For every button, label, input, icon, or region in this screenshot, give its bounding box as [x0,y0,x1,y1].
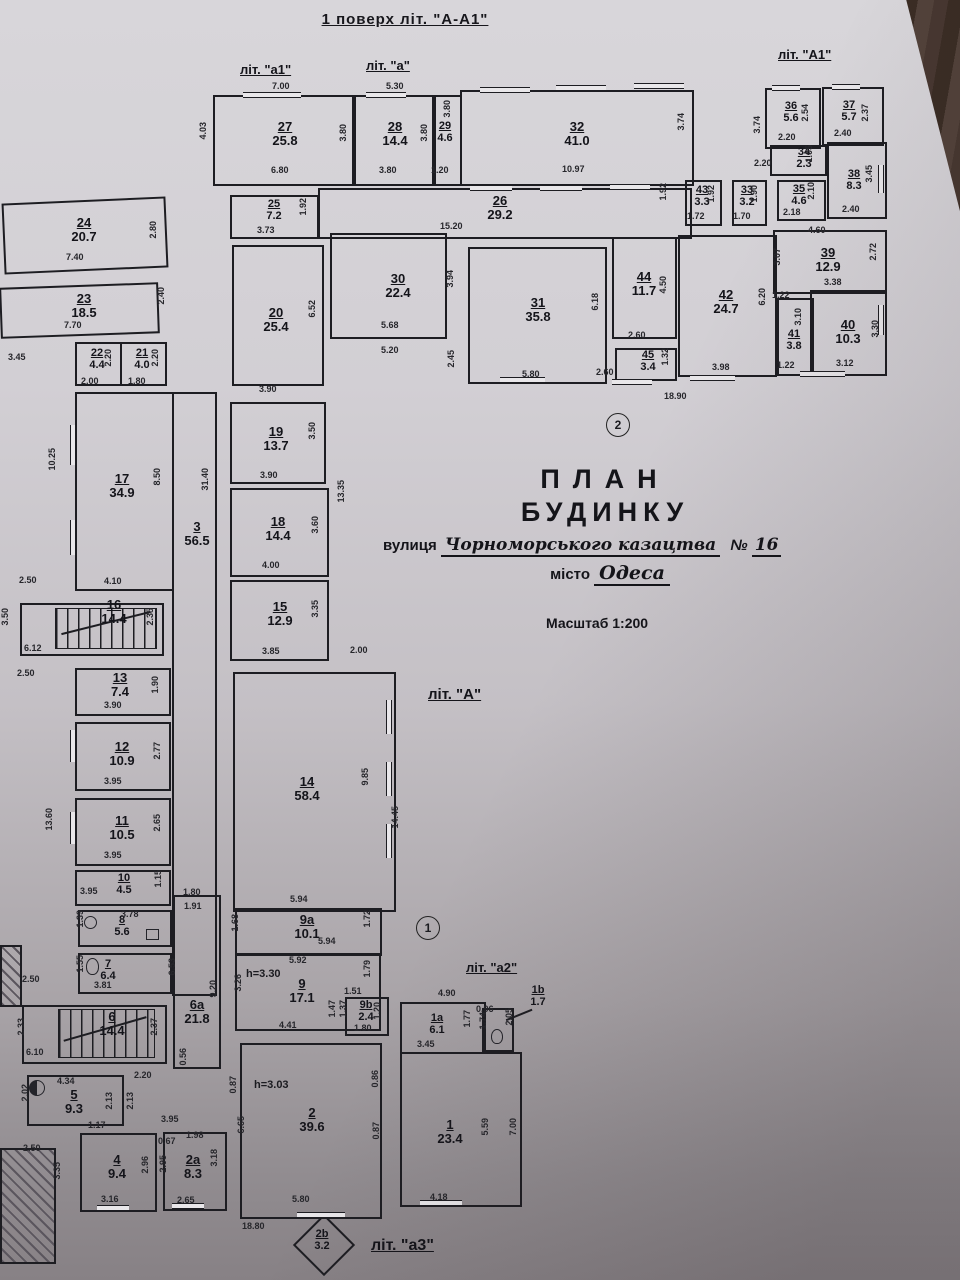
street-line: вулиця Чорноморського казацтва № 16 [383,535,843,555]
window-symbol [386,762,392,796]
street-label: вулиця [383,537,437,554]
room-label-27: 2725.8 [253,120,317,148]
dim-label: 4.10 [104,576,122,586]
dim-label: 1.91 [184,901,202,911]
dim-label: 3.50 [0,608,10,626]
room-label-1b: 1b1.7 [512,984,564,1008]
window-symbol [366,92,406,98]
dim-label: 1.37 [338,1000,348,1018]
room-label-1a: 1a6.1 [411,1012,463,1036]
dim-label: 0.86 [370,1070,380,1088]
dim-label: 4.34 [57,1076,75,1086]
dim-label: 3.78 [121,909,139,919]
dim-label: 1.55 [75,955,85,973]
dim-label: 9.85 [360,768,370,786]
dim-label: 5.80 [292,1194,310,1204]
room-label-12: 1210.9 [90,740,154,768]
room-label-24: 2420.7 [52,216,116,244]
dim-label: 2.33 [16,1018,26,1036]
window-symbol [70,730,76,762]
dim-label: 2.96 [140,1156,150,1174]
dim-label: 2.80 [148,221,158,239]
dim-label: 0.87 [371,1122,381,1140]
dim-label: 4.18 [430,1192,448,1202]
dim-label: 3.38 [824,277,842,287]
dim-label: 2.65 [152,814,162,832]
room-label-25: 257.2 [248,198,300,222]
dim-label: 5.80 [522,369,540,379]
dim-label: 0.67 [158,1136,176,1146]
dim-label: 2.20 [754,158,772,168]
dim-label: 3.95 [104,776,122,786]
dim-label: 3.90 [104,700,122,710]
height-note: h=3.30 [246,968,281,980]
dim-label: 3.80 [419,124,429,142]
room-label-16: 1614.4 [82,598,146,626]
room-label-39: 3912.9 [796,246,860,274]
dim-label: 2.50 [22,974,40,984]
dim-label: 1.70 [733,211,751,221]
dim-label: 4.00 [262,560,280,570]
window-symbol [610,184,650,190]
dim-label: 3.35 [52,1162,62,1180]
dim-label: 1.80 [128,376,146,386]
room-label-41: 413.8 [768,328,820,352]
dim-label: 5.59 [480,1118,490,1136]
window-symbol [70,812,76,844]
dim-label: 7.00 [508,1118,518,1136]
dim-label: 1.22 [772,290,790,300]
dim-label: 5.30 [386,81,404,91]
dim-label: 2.65 [177,1195,195,1205]
dim-label: 2.50 [23,1143,41,1153]
dim-label: 15.20 [440,221,463,231]
room-label-42: 4224.7 [694,288,758,316]
scale-note: Масштаб 1:200 [546,615,648,631]
number-value: 16 [752,535,782,557]
dim-label: 3.95 [80,886,98,896]
dim-label: 3.73 [257,225,275,235]
dim-label: 1.32 [660,348,670,366]
dim-label: 3.50 [307,422,317,440]
room-label-5: 59.3 [42,1088,106,1116]
dim-label: 1.80 [183,887,201,897]
dim-label: 0.87 [228,1076,238,1094]
dim-label: 6.52 [307,300,317,318]
dim-label: 2.54 [800,104,810,122]
dim-label: 2.37 [149,1018,159,1036]
room-label-15: 1512.9 [248,600,312,628]
axis-marker-2: 2 [606,413,630,437]
dim-label: 31.40 [200,468,210,491]
dim-label: 1.92 [658,183,668,201]
dim-label: 3.35 [310,600,320,618]
dim-label: 2.40 [842,204,860,214]
dim-label: 3.90 [259,384,277,394]
room-label-31: 3135.8 [506,296,570,324]
room-label-20: 2025.4 [244,306,308,334]
city-value: Одеса [594,562,670,586]
room-label-32: 3241.0 [545,120,609,148]
dim-label: 2.00 [81,376,99,386]
room-label-30: 3022.4 [366,272,430,300]
city-label: місто [550,566,590,583]
dim-label: 6.65 [236,1116,246,1134]
dim-label: 3.45 [8,352,26,362]
dim-label: 1.47 [327,1000,337,1018]
room-label-10: 104.5 [98,872,150,896]
dim-label: 1.68 [230,914,240,932]
dim-label: 2.60 [628,330,646,340]
liter-label-a2: літ. "а2" [466,960,517,975]
dim-label: 1.77 [462,1010,472,1028]
dim-label: 2.20 [150,349,160,367]
dim-label: 5.94 [290,894,308,904]
room-label-2: 239.6 [280,1106,344,1134]
dim-label: 2.02 [20,1084,30,1102]
dim-label: 14.45 [390,806,400,829]
dim-label: 3.12 [836,358,854,368]
dim-label: 3.26 [233,974,243,992]
dim-label: 0.56 [178,1048,188,1066]
dim-label: 3.98 [712,362,730,372]
number-label: № [724,537,747,554]
room-label-28: 2814.4 [363,120,427,148]
dim-label: 9.20 [208,980,218,998]
dim-label: 1.39 [75,910,85,928]
dim-label: 3.60 [310,516,320,534]
window-symbol [556,85,606,91]
dim-label: 7.00 [272,81,290,91]
dim-label: 8.50 [152,468,162,486]
window-symbol [540,185,582,191]
dim-label: 1.90 [150,676,160,694]
dim-label: 3.80 [379,165,397,175]
dim-label: 3.80 [442,100,452,118]
dim-label: 18.90 [664,391,687,401]
dim-label: 6.53 [167,958,177,976]
dim-label: 3.95 [104,850,122,860]
window-symbol [690,375,735,381]
room-label-18: 1814.4 [246,515,310,543]
dim-label: 2.13 [104,1092,114,1110]
room-label-6a: 6a21.8 [165,998,229,1026]
room-label-33: 333.2 [721,184,773,208]
dim-label: 1.92 [298,198,308,216]
wall-hatch [0,1148,56,1264]
room-label-21: 214.0 [116,347,168,371]
dim-label: 3.74 [752,116,762,134]
dim-label: 2.20 [103,349,113,367]
liter-label-A1: літ. "А1" [778,47,831,62]
dim-label: 6.12 [24,643,42,653]
dim-label: 2.20 [778,132,796,142]
dim-label: 2.72 [868,243,878,261]
window-symbol [386,824,392,858]
dim-label: 3.45 [417,1039,435,1049]
room-label-19: 1913.7 [244,425,308,453]
dim-label: 13.35 [336,480,346,503]
dim-label: 13.60 [44,808,54,831]
dim-label: 4.41 [279,1020,297,1030]
room-label-35: 354.6 [773,183,825,207]
dim-label: 2.40 [156,287,166,305]
window-symbol [772,85,800,91]
dim-label: 2.60 [596,367,614,377]
window-symbol [243,92,301,98]
dim-label: 3.18 [209,1149,219,1167]
window-symbol [800,371,845,377]
dim-label: 1.15 [153,870,163,888]
dim-label: 3.16 [101,1194,119,1204]
axis-marker-1: 1 [416,916,440,940]
dim-label: 2.40 [834,128,852,138]
dim-label: 1.90 [749,185,759,203]
dim-label: 1.92 [706,185,716,203]
dim-label: 1.51 [344,986,362,996]
dim-label: 1.17 [88,1120,106,1130]
dim-label: 6.18 [590,293,600,311]
dim-label: 18.80 [242,1221,265,1231]
dim-label: 1.79 [362,960,372,978]
stamp-line-plan: ПЛАН [470,464,740,495]
dim-label: 4.90 [438,988,456,998]
room-label-1: 123.4 [418,1118,482,1146]
room-label-26: 2629.2 [468,194,532,222]
dim-label: 2.13 [125,1092,135,1110]
dim-label: 3.95 [161,1114,179,1124]
room-label-2b: 2b3.2 [296,1228,348,1252]
dim-label: 1.98 [186,1130,204,1140]
toilet-icon [491,1029,503,1044]
dim-label: 10.97 [562,164,585,174]
window-symbol [70,425,76,465]
dim-label: 1.80 [354,1023,372,1033]
dim-label: 7.70 [64,320,82,330]
dim-label: 2.00 [350,645,368,655]
window-symbol [297,1212,345,1218]
dim-label: 6.80 [271,165,289,175]
dim-label: 5.68 [381,320,399,330]
dim-label: 2.50 [17,668,35,678]
dim-label: 4.03 [198,122,208,140]
liter-label-a: літ. "а" [366,58,410,73]
dim-label: 3.90 [260,470,278,480]
liter-label-a3: літ. "а3" [371,1237,434,1255]
room-label-23: 2318.5 [52,292,116,320]
dim-label: 2.05 [504,1008,514,1026]
dim-label: 1.22 [777,360,795,370]
dim-label: 2.10 [806,182,816,200]
room-label-13: 137.4 [88,671,152,699]
dim-label: 3.30 [870,320,880,338]
dim-label: 7.40 [66,252,84,262]
dim-label: 2.95 [158,1155,168,1173]
dim-label: 1.20 [431,165,449,175]
room-label-11: 1110.5 [90,814,154,842]
window-symbol [832,84,860,90]
liter-label-A: літ. "А" [428,686,481,703]
window-symbol [634,83,684,89]
dim-label: 5.94 [318,936,336,946]
room-label-17: 1734.9 [90,472,154,500]
dim-label: 1.20 [372,1002,382,1020]
dim-label: 6.20 [757,288,767,306]
dim-label: 1.74 [478,1012,488,1030]
window-symbol [480,87,530,93]
dim-label: 2.45 [446,350,456,368]
room-label-9: 917.1 [270,977,334,1005]
height-note: h=3.03 [254,1079,289,1091]
dim-label: 5.92 [289,955,307,965]
dim-label: 2.35 [145,608,155,626]
dim-label: 4.50 [658,276,668,294]
dim-label: 1.05 [804,145,814,163]
stamp-line-budynku: БУДИНКУ [455,497,755,528]
window-symbol [70,520,76,555]
window-symbol [386,700,392,734]
dim-label: 2.20 [134,1070,152,1080]
window-symbol [470,185,512,191]
liter-label-a1: літ. "а1" [240,62,291,77]
dim-label: 3.80 [338,124,348,142]
room-label-6: 614.4 [80,1010,144,1038]
dim-label: 4.60 [808,225,826,235]
wall-hatch [0,945,22,1007]
room-label-14: 1458.4 [275,775,339,803]
room-label-3: 356.5 [165,520,229,548]
dim-label: 2.50 [19,575,37,585]
dim-label: 3.07 [772,248,782,266]
window-symbol [97,1205,129,1211]
dim-label: 3.81 [94,980,112,990]
street-value: Чорноморського казацтва [441,535,720,557]
dim-label: 3.94 [445,270,455,288]
city-line: місто Одеса [495,562,725,584]
dim-label: 6.10 [26,1047,44,1057]
dim-label: 5.20 [381,345,399,355]
dim-label: 3.74 [676,113,686,131]
dim-label: 2.77 [152,742,162,760]
page-title: 1 поверх літ. "А-А1" [240,11,570,28]
dim-label: 2.37 [860,104,870,122]
room-label-7: 76.4 [82,958,134,982]
dim-label: 10.25 [47,448,57,471]
window-symbol [612,379,652,385]
dim-label: 2.18 [783,207,801,217]
dim-label: 3.85 [262,646,280,656]
dim-label: 3.10 [793,308,803,326]
dim-label: 1.72 [362,910,372,928]
dim-label: 1.72 [687,211,705,221]
dim-label: 3.45 [864,165,874,183]
